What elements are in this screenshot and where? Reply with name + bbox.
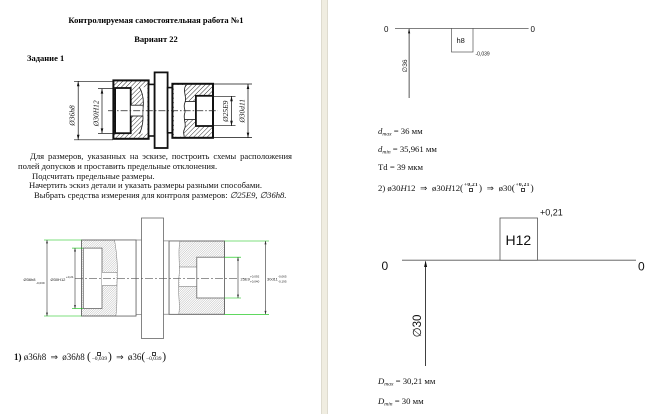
svg-text:∅36: ∅36 [402, 59, 409, 72]
svg-text:+0,040: +0,040 [250, 280, 260, 284]
svg-text:-0,039: -0,039 [476, 52, 490, 58]
svg-text:0: 0 [384, 25, 389, 34]
svg-text:0: 0 [638, 260, 645, 274]
svg-text:Ø25E9: Ø25E9 [221, 100, 230, 122]
svg-text:Ø30d11: Ø30d11 [237, 99, 246, 124]
svg-text:-0,065: -0,065 [278, 275, 287, 279]
svg-text:Ø30H12: Ø30H12 [51, 277, 67, 282]
svg-text:0: 0 [382, 259, 389, 273]
svg-text:30d11: 30d11 [267, 277, 279, 282]
svg-text:H12: H12 [506, 232, 532, 248]
svg-text:-0,195: -0,195 [278, 280, 287, 284]
svg-text:h8: h8 [457, 36, 465, 45]
svg-text:∅30: ∅30 [412, 315, 424, 338]
svg-text:0: 0 [531, 25, 536, 34]
svg-text:-0,039: -0,039 [36, 281, 45, 285]
svg-text:+0,21: +0,21 [66, 275, 74, 279]
svg-text:+0,092: +0,092 [250, 275, 260, 279]
svg-text:+0,21: +0,21 [540, 208, 563, 218]
svg-text:Ø30H12: Ø30H12 [91, 100, 100, 127]
svg-text:Ø36h8: Ø36h8 [24, 277, 37, 282]
svg-text:Ø36h8: Ø36h8 [68, 105, 77, 127]
